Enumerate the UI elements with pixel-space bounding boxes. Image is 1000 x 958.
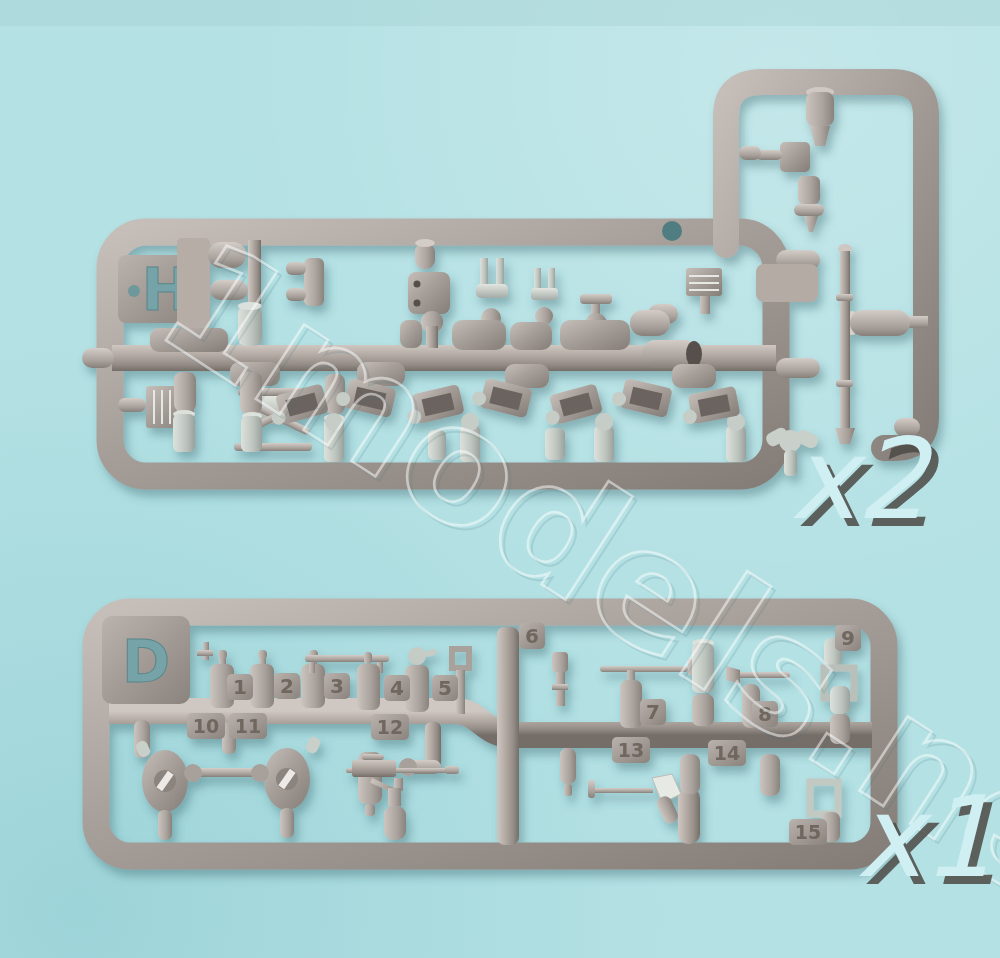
- svg-text:5: 5: [438, 676, 452, 700]
- svg-text:1: 1: [233, 675, 247, 699]
- runner-hole: [662, 221, 682, 241]
- sprue-d-bottom-stub-runner: [678, 788, 700, 844]
- svg-text:11: 11: [235, 715, 261, 737]
- part-number-tag: 1: [227, 674, 253, 700]
- part-number-tag: 12: [371, 714, 409, 740]
- svg-text:15: 15: [795, 821, 821, 843]
- svg-text:12: 12: [377, 716, 403, 738]
- svg-text:2: 2: [280, 674, 294, 698]
- left-stub-cylinder: [82, 348, 114, 368]
- sprue-d-quantity: x1 x1: [856, 772, 1000, 910]
- part-open-tube: [642, 340, 702, 368]
- svg-text:10: 10: [193, 715, 219, 737]
- svg-text:4: 4: [390, 676, 404, 700]
- background-top-strip: [0, 0, 1000, 26]
- part-number-tag: 11: [229, 713, 267, 739]
- sprue-d-vertical-runner: [497, 627, 519, 845]
- part-number-tag: 13: [612, 737, 650, 763]
- sprue-d-letter: D: [122, 628, 170, 696]
- part-cylinder: [680, 754, 700, 794]
- part-number-tag: 10: [187, 713, 225, 739]
- quantity-label: x2: [790, 414, 934, 544]
- part-number-tag: 4: [384, 675, 410, 701]
- part-number-tag: 15: [789, 819, 827, 845]
- svg-text:3: 3: [330, 674, 344, 698]
- part-number-tag: 5: [432, 675, 458, 701]
- tag-hole: [128, 285, 140, 297]
- scene: H: [0, 0, 1000, 958]
- part-number-tag: 3: [324, 673, 350, 699]
- photo-of-model-kit-sprues: H: [0, 0, 1000, 958]
- sprue-h-quantity: x2 x2: [790, 414, 941, 552]
- quantity-label: x1: [856, 772, 994, 902]
- sprue-d-tag: D: [102, 616, 190, 704]
- svg-text:13: 13: [618, 739, 644, 761]
- part-number-tag: 2: [274, 673, 300, 699]
